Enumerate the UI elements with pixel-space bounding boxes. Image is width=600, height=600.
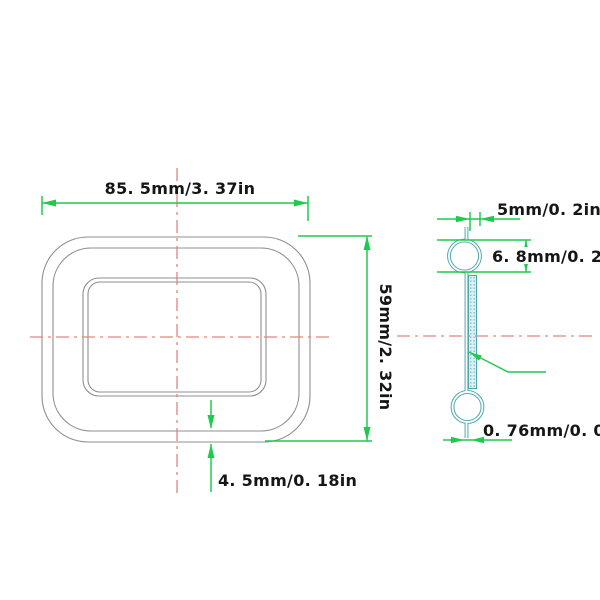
depth-dim-label: 5mm/0. 2in	[497, 200, 600, 219]
width-arrow-right-icon	[294, 200, 308, 207]
wall-dim-label: 0. 76mm/0. 03in	[483, 421, 600, 440]
height-arrow-bottom-icon	[364, 427, 371, 441]
wall-arrow-left-icon	[451, 437, 464, 443]
depth-arrow-left-icon	[456, 216, 470, 222]
rim-outline	[53, 248, 299, 431]
dimension-labels: 85. 5mm/3. 37in 59mm/2. 32in 4. 5mm/0. 1…	[105, 179, 600, 490]
dimension-drawing: 85. 5mm/3. 37in 59mm/2. 32in 4. 5mm/0. 1…	[0, 0, 600, 600]
hook-dim-label: 6. 8mm/0. 27in	[492, 247, 600, 266]
technical-drawing-canvas: 85. 5mm/3. 37in 59mm/2. 32in 4. 5mm/0. 1…	[0, 0, 600, 600]
height-arrow-top-icon	[364, 236, 371, 250]
strip-leader-line	[469, 352, 546, 372]
side-profile	[449, 227, 483, 438]
depth-arrow-right-icon	[480, 216, 494, 222]
width-arrow-left-icon	[42, 200, 56, 207]
rim-arrow-up-icon	[208, 444, 215, 458]
width-dim-label: 85. 5mm/3. 37in	[105, 179, 256, 198]
rim-dim-label: 4. 5mm/0. 18in	[218, 471, 357, 490]
rim-arrow-down-icon	[208, 415, 215, 429]
profile-bottom-curl-core	[453, 392, 483, 422]
strip-leader-arrow-icon	[469, 352, 482, 361]
front-view-outlines	[42, 237, 310, 442]
outer-edge-outline	[42, 237, 310, 442]
profile-top-curl-core	[449, 241, 480, 272]
dimension-lines	[42, 196, 546, 492]
height-dim-label: 59mm/2. 32in	[376, 284, 395, 411]
